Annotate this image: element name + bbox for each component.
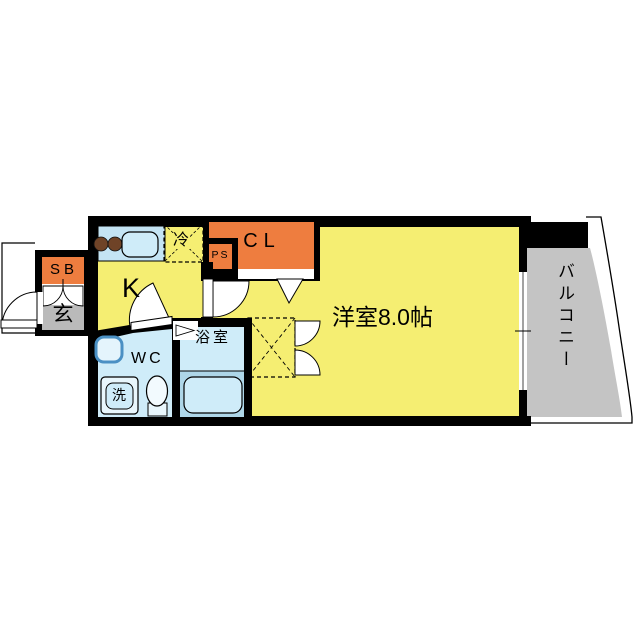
closet-label: CL [236, 231, 288, 251]
toilet-bowl [147, 376, 168, 406]
front-door-panel [1, 320, 37, 328]
refrigerator-label: 冷 [172, 233, 190, 249]
wash-basin [96, 337, 122, 362]
main-room-label: 洋室8.0帖 [332, 306, 433, 329]
door-wall-stub-upper [201, 262, 213, 281]
room-door-panel [203, 279, 213, 317]
entrance-label: 玄 [42, 304, 84, 325]
closet-door-opening [238, 269, 314, 279]
balcony-label: バルコニー [556, 262, 573, 372]
floor-plan-page: SB 玄 K 冷 PS CL 洋室8.0帖 バルコニー WC 浴室 洗 [0, 0, 640, 640]
right-wall-upper [519, 227, 527, 272]
bathtub [184, 377, 242, 413]
toilet-room-label: WC [131, 351, 164, 367]
burner-right [108, 237, 122, 251]
pipe-space-label: PS [208, 250, 233, 261]
kitchen-sink [122, 232, 158, 257]
burner-left [94, 237, 108, 251]
kitchen-label: K [122, 275, 140, 302]
kitchen-counter [94, 226, 165, 261]
shoe-box-label: SB [44, 262, 84, 277]
floor-plan-drawing [0, 0, 640, 640]
bathroom-label: 浴室 [184, 330, 242, 345]
washing-machine-label: 洗 [112, 388, 126, 402]
balcony [519, 217, 632, 423]
